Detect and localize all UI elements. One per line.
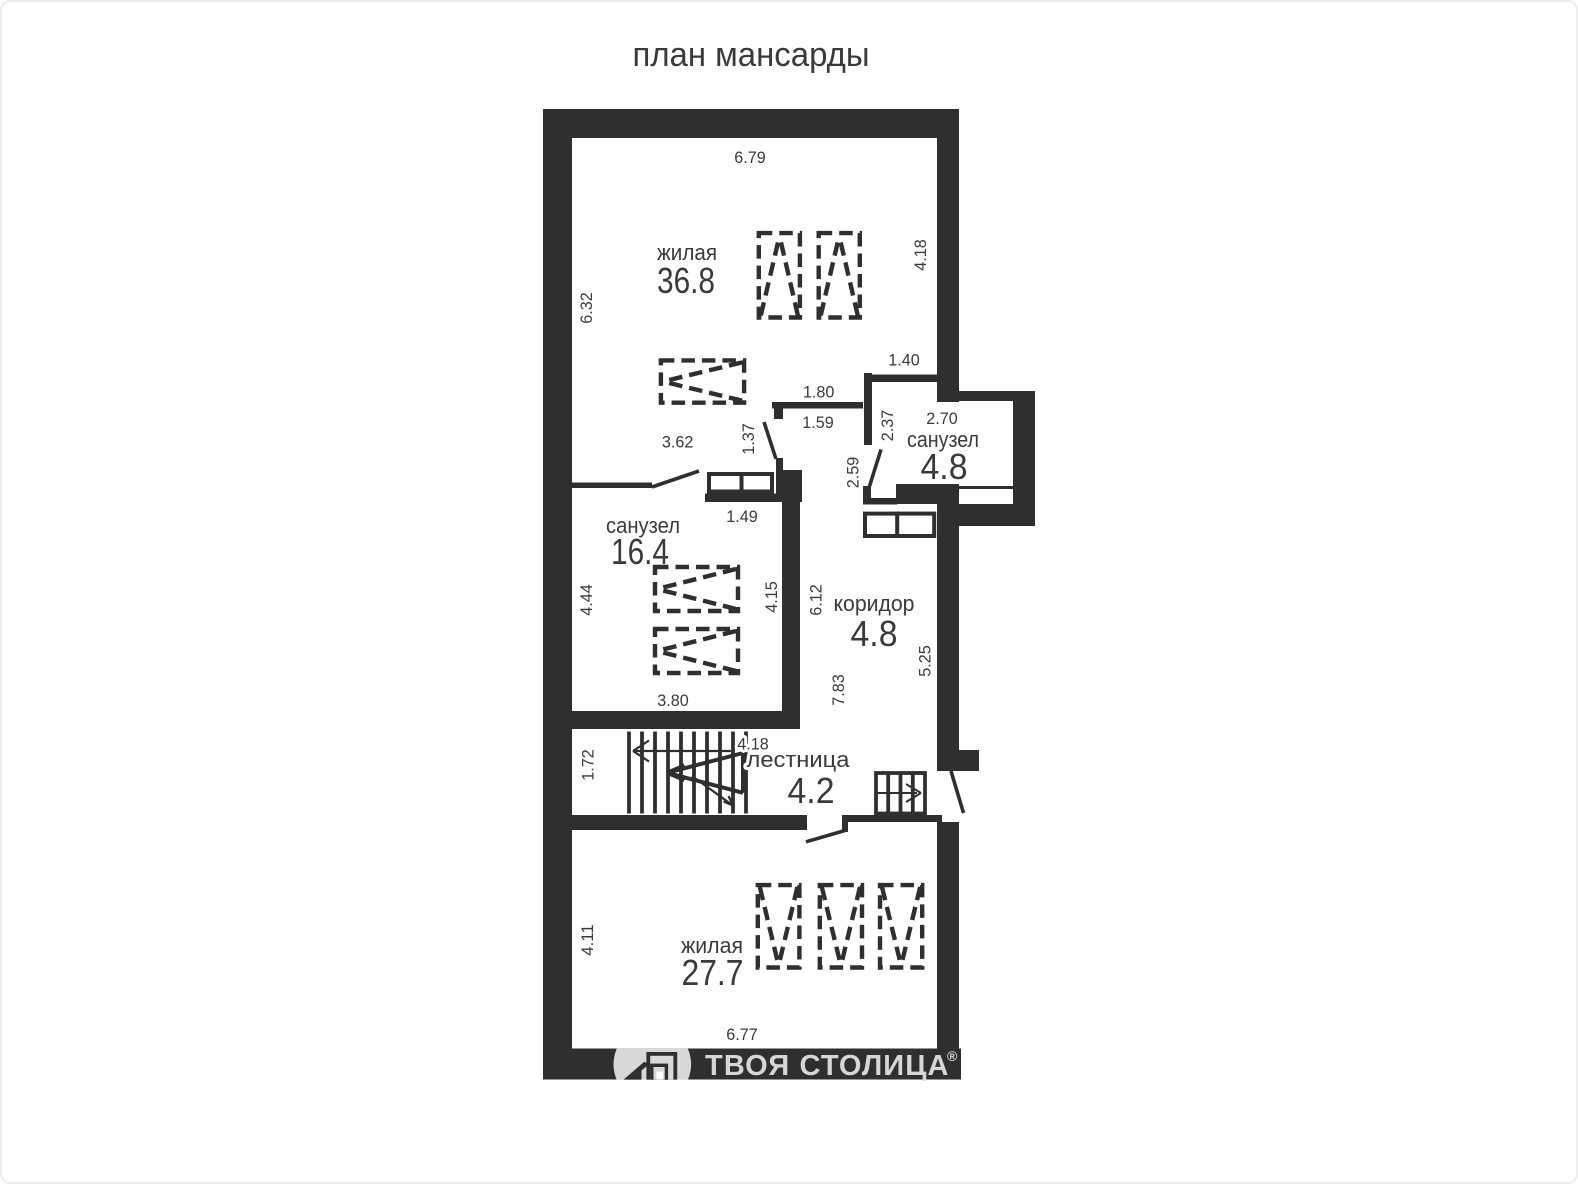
- svg-text:6.77: 6.77: [726, 1025, 758, 1044]
- svg-text:27.7: 27.7: [682, 952, 744, 993]
- svg-text:1.49: 1.49: [726, 507, 758, 526]
- svg-text:6.79: 6.79: [734, 148, 766, 167]
- svg-text:1.40: 1.40: [888, 351, 920, 370]
- svg-text:1.59: 1.59: [802, 413, 834, 432]
- svg-text:план мансарды: план мансарды: [633, 36, 870, 74]
- svg-text:1.37: 1.37: [739, 423, 758, 455]
- svg-text:2.70: 2.70: [926, 409, 958, 428]
- svg-text:4.15: 4.15: [762, 581, 781, 613]
- svg-text:3.80: 3.80: [657, 691, 689, 710]
- svg-text:6.12: 6.12: [807, 584, 826, 616]
- svg-text:4.11: 4.11: [578, 924, 597, 956]
- svg-text:36.8: 36.8: [657, 260, 715, 301]
- svg-text:4.8: 4.8: [921, 446, 968, 487]
- svg-text:4.18: 4.18: [911, 239, 930, 271]
- svg-text:4.18: 4.18: [737, 735, 769, 754]
- svg-text:6.32: 6.32: [577, 292, 596, 324]
- svg-text:4.2: 4.2: [788, 770, 835, 811]
- svg-text:®: ®: [947, 1048, 958, 1064]
- svg-text:4.44: 4.44: [577, 584, 596, 616]
- svg-text:1.72: 1.72: [579, 749, 598, 781]
- svg-text:1.80: 1.80: [803, 383, 835, 402]
- svg-text:ТВОЯ СТОЛИЦА: ТВОЯ СТОЛИЦА: [705, 1050, 950, 1082]
- svg-text:2.59: 2.59: [844, 457, 863, 489]
- svg-text:5.25: 5.25: [916, 645, 935, 677]
- svg-text:3.62: 3.62: [662, 433, 694, 452]
- svg-text:4.8: 4.8: [851, 613, 898, 654]
- svg-text:7.83: 7.83: [829, 674, 848, 706]
- svg-text:2.37: 2.37: [878, 410, 897, 442]
- svg-text:16.4: 16.4: [611, 531, 669, 572]
